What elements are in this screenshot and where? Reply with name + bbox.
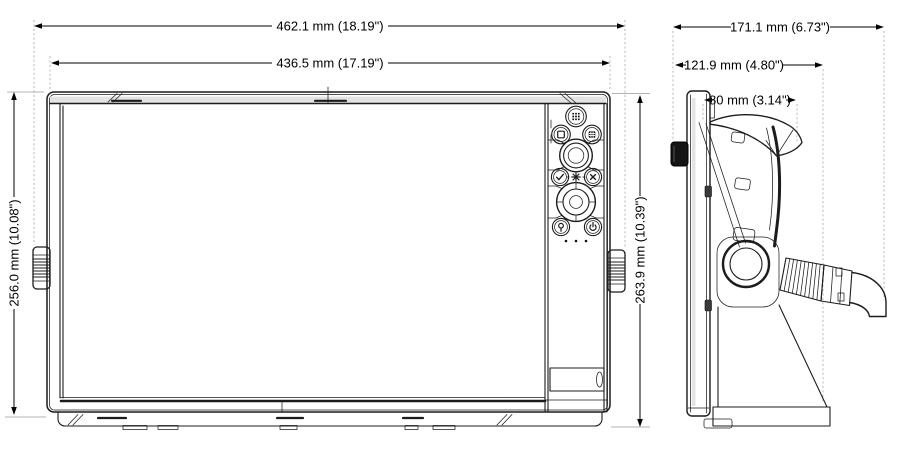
- dim-mount-depth-label: 80 mm (3.14"): [709, 93, 791, 108]
- dim-screen-width: 436.5 mm (17.19"): [51, 56, 610, 71]
- checkmark-icon: [557, 174, 564, 179]
- panel-clip-upper: [705, 186, 712, 197]
- power-icon: [590, 222, 596, 230]
- connector-ribs: [784, 259, 820, 300]
- pages-button: [566, 106, 587, 127]
- dim-overall-depth: 171.1 mm (6.73"): [673, 20, 884, 35]
- center-tick-marks: [282, 87, 328, 412]
- dim-left-height-label: 256.0 mm (10.08"): [7, 199, 22, 306]
- dim-overall-depth-label: 171.1 mm (6.73"): [730, 20, 830, 35]
- drawing-svg: 462.1 mm (18.19") 436.5 mm (17.19") 256.…: [0, 0, 900, 471]
- bracket-fin: [710, 115, 802, 156]
- directional-pad: [557, 183, 596, 222]
- front-body-inner-line: [50, 95, 608, 411]
- asterisk-icon: [572, 173, 580, 181]
- star-mark: [567, 173, 585, 181]
- side-device: [671, 91, 886, 428]
- bracket-pivot: [717, 237, 779, 307]
- dim-left-height: 256.0 mm (10.08"): [7, 92, 22, 415]
- exit-button: [584, 168, 601, 185]
- cross-icon: [591, 175, 596, 180]
- dim-right-height: 263.9 mm (10.39"): [633, 95, 648, 427]
- front-device: [33, 87, 625, 430]
- dim-bracket-depth: 121.9 mm (4.80"): [675, 58, 823, 73]
- extension-lines-front-solid: [5, 92, 650, 427]
- accept-button: [551, 168, 568, 185]
- dim-bracket-depth-label: 121.9 mm (4.80"): [684, 58, 784, 73]
- keypad-panel: [545, 104, 607, 412]
- dim-right-height-label: 263.9 mm (10.39"): [633, 196, 648, 303]
- power-cable-connector: [780, 258, 886, 317]
- dim-overall-width-label: 462.1 mm (18.19"): [276, 19, 383, 34]
- cable-clip-1: [731, 132, 745, 144]
- rotary-knob: [560, 139, 593, 172]
- bezel-vent-segments: [98, 101, 423, 418]
- square-outline-icon: [558, 131, 565, 138]
- panel-clip-lower: [705, 300, 712, 311]
- dim-overall-width: 462.1 mm (18.19"): [34, 19, 625, 34]
- front-body-outline: [47, 92, 610, 412]
- filled-grid-icon: [589, 131, 596, 138]
- corner-hatch-marks: [68, 94, 576, 426]
- dim-mount-depth: 80 mm (3.14"): [704, 93, 796, 108]
- card-reader-door: [545, 368, 607, 400]
- door-finger-notch: [597, 372, 603, 387]
- power-button: [584, 218, 601, 235]
- keypad-dots: [565, 240, 588, 243]
- front-bottom-lip: [58, 412, 602, 426]
- extension-lines-front-dotted: [34, 20, 625, 248]
- map-pin-icon: [559, 223, 564, 228]
- side-panel: [687, 91, 715, 416]
- waypoint-button: [552, 218, 569, 235]
- bracket-arm: [699, 123, 780, 248]
- dim-screen-width-label: 436.5 mm (17.19"): [276, 56, 383, 71]
- cable-clip-2: [734, 178, 750, 191]
- bracket-base: [704, 305, 830, 428]
- screen-left-edge: [60, 104, 63, 398]
- cable: [850, 273, 886, 317]
- grid-dots-icon: [572, 113, 579, 120]
- dimension-drawing: 462.1 mm (18.19") 436.5 mm (17.19") 256.…: [0, 0, 900, 471]
